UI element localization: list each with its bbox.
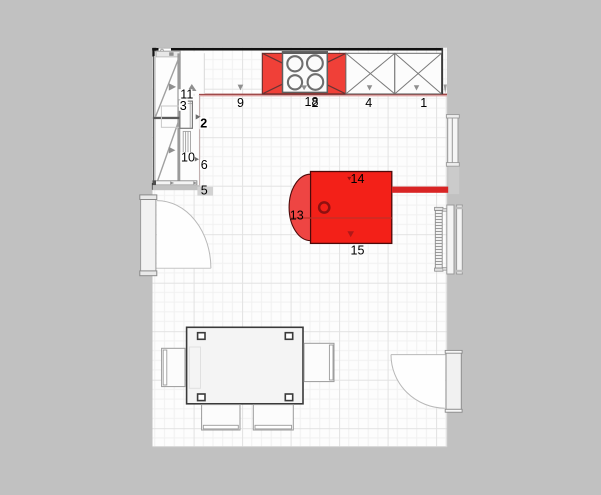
svg-text:4: 4 [365,96,372,110]
svg-text:5: 5 [201,184,208,198]
svg-text:6: 6 [201,158,208,172]
svg-text:9: 9 [237,96,244,110]
svg-text:14: 14 [351,172,365,186]
svg-text:15: 15 [351,244,365,258]
svg-text:10: 10 [181,151,195,165]
svg-text:3: 3 [180,99,187,113]
svg-text:1: 1 [420,96,427,110]
svg-text:2: 2 [200,117,207,131]
svg-text:13: 13 [290,209,304,223]
svg-text:2: 2 [312,96,319,110]
